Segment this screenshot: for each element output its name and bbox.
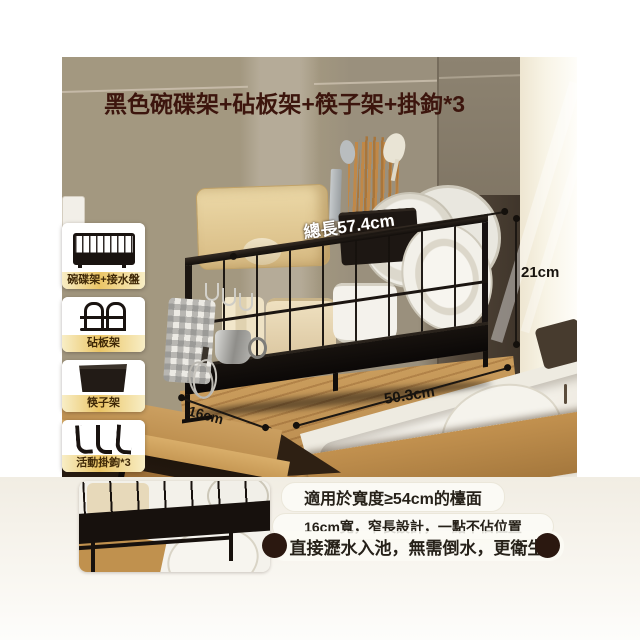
stand-base bbox=[80, 328, 126, 331]
sidebar-label: 砧板架 bbox=[62, 335, 145, 352]
thumb-leg bbox=[229, 533, 233, 561]
s-hook bbox=[222, 288, 236, 306]
decorative-dot-right bbox=[535, 533, 560, 558]
hook bbox=[75, 424, 93, 454]
sidebar-label: 碗碟架+接水盤 bbox=[62, 272, 145, 289]
holder-box bbox=[79, 364, 127, 392]
sidebar-card-bowl-rack: 碗碟架+接水盤 bbox=[62, 223, 145, 289]
hanging-cup bbox=[215, 330, 251, 364]
feature-text-1: 適用於寬度≥54cm的檯面 bbox=[304, 485, 482, 509]
hook bbox=[96, 425, 112, 454]
s-hook bbox=[239, 293, 253, 311]
stand-bar bbox=[80, 316, 126, 319]
cutting-board-stand-icon bbox=[62, 297, 145, 335]
decorative-dot-left bbox=[262, 533, 287, 558]
sidebar-label: 筷子架 bbox=[62, 395, 145, 412]
rack-leg bbox=[483, 351, 488, 368]
sidebar-card-chopstick-holder: 筷子架 bbox=[62, 360, 145, 412]
height-dimension-line bbox=[515, 218, 517, 345]
chopstick-holder-icon bbox=[62, 360, 145, 395]
page-title: 黑色碗碟架+砧板架+筷子架+掛鉤*3 bbox=[104, 85, 465, 119]
basket-body bbox=[73, 233, 135, 265]
triple-hooks-icon bbox=[62, 420, 145, 455]
feature-pill-3: 直接瀝水入池，無需倒水，更衛生 bbox=[270, 531, 564, 561]
basket-foot bbox=[78, 262, 82, 268]
feature-text-3: 直接瀝水入池，無需倒水，更衛生 bbox=[290, 534, 545, 559]
basket-foot bbox=[122, 262, 126, 268]
cup-handle bbox=[248, 337, 267, 359]
rack-leg bbox=[333, 373, 338, 392]
wall-cabinet-handle bbox=[564, 384, 567, 404]
sidebar-card-board-stand: 砧板架 bbox=[62, 297, 145, 352]
sidebar-label: 活動掛鉤*3 bbox=[62, 455, 145, 472]
hook bbox=[115, 424, 133, 454]
s-hook bbox=[205, 283, 219, 301]
wire-basket-icon bbox=[62, 223, 145, 272]
detail-thumbnail bbox=[79, 481, 270, 572]
feature-pill-1: 適用於寬度≥54cm的檯面 bbox=[281, 482, 505, 512]
sidebar-card-hooks: 活動掛鉤*3 bbox=[62, 420, 145, 472]
height-label: 21cm bbox=[521, 264, 559, 281]
thumb-leg bbox=[91, 537, 95, 572]
